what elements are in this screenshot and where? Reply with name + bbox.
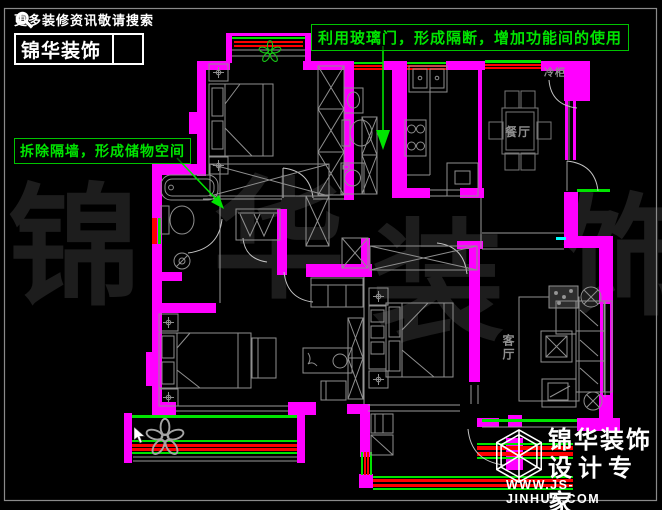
plant-icon <box>258 41 281 63</box>
furniture <box>145 41 612 456</box>
label-freezer: 冷柜 <box>544 64 566 79</box>
balcony-furniture <box>371 414 393 455</box>
header-brand: 锦华装饰 <box>16 36 112 63</box>
annotation-storage: 拆除隔墙，形成储物空间 <box>14 138 191 164</box>
bathroom-furniture <box>161 175 218 269</box>
footer-logo: 锦华装饰 设计专家 WWW.JS-JINHUA.COM <box>488 418 660 508</box>
arrow-down-icon <box>376 130 390 150</box>
cyan-mark <box>556 237 566 240</box>
label-living-room: 客厅 <box>500 334 517 362</box>
header-brand-box: 锦华装饰 <box>14 33 144 65</box>
bedroom3-furniture <box>369 246 477 388</box>
hall-storage-furniture <box>236 196 368 268</box>
floorplan-screenshot: 锦 华 装 饰 <box>0 0 662 510</box>
arrow-diagonal-icon <box>211 195 224 209</box>
annotation-glass-door: 利用玻璃门，形成隔断，增加功能间的使用 <box>311 24 629 51</box>
kitchen-furniture <box>405 66 478 196</box>
header-logo: 更多装修资讯敬请搜索 锦华装饰 <box>14 10 154 65</box>
living-furniture <box>519 286 612 410</box>
footer-website: WWW.JS-JINHUA.COM <box>506 478 660 506</box>
study-furniture <box>303 278 363 400</box>
header-tagline: 更多装修资讯敬请搜索 <box>14 10 154 29</box>
divider <box>112 35 114 63</box>
label-dining-room: 餐厅 <box>505 123 531 140</box>
bedroom2-furniture <box>145 314 276 456</box>
